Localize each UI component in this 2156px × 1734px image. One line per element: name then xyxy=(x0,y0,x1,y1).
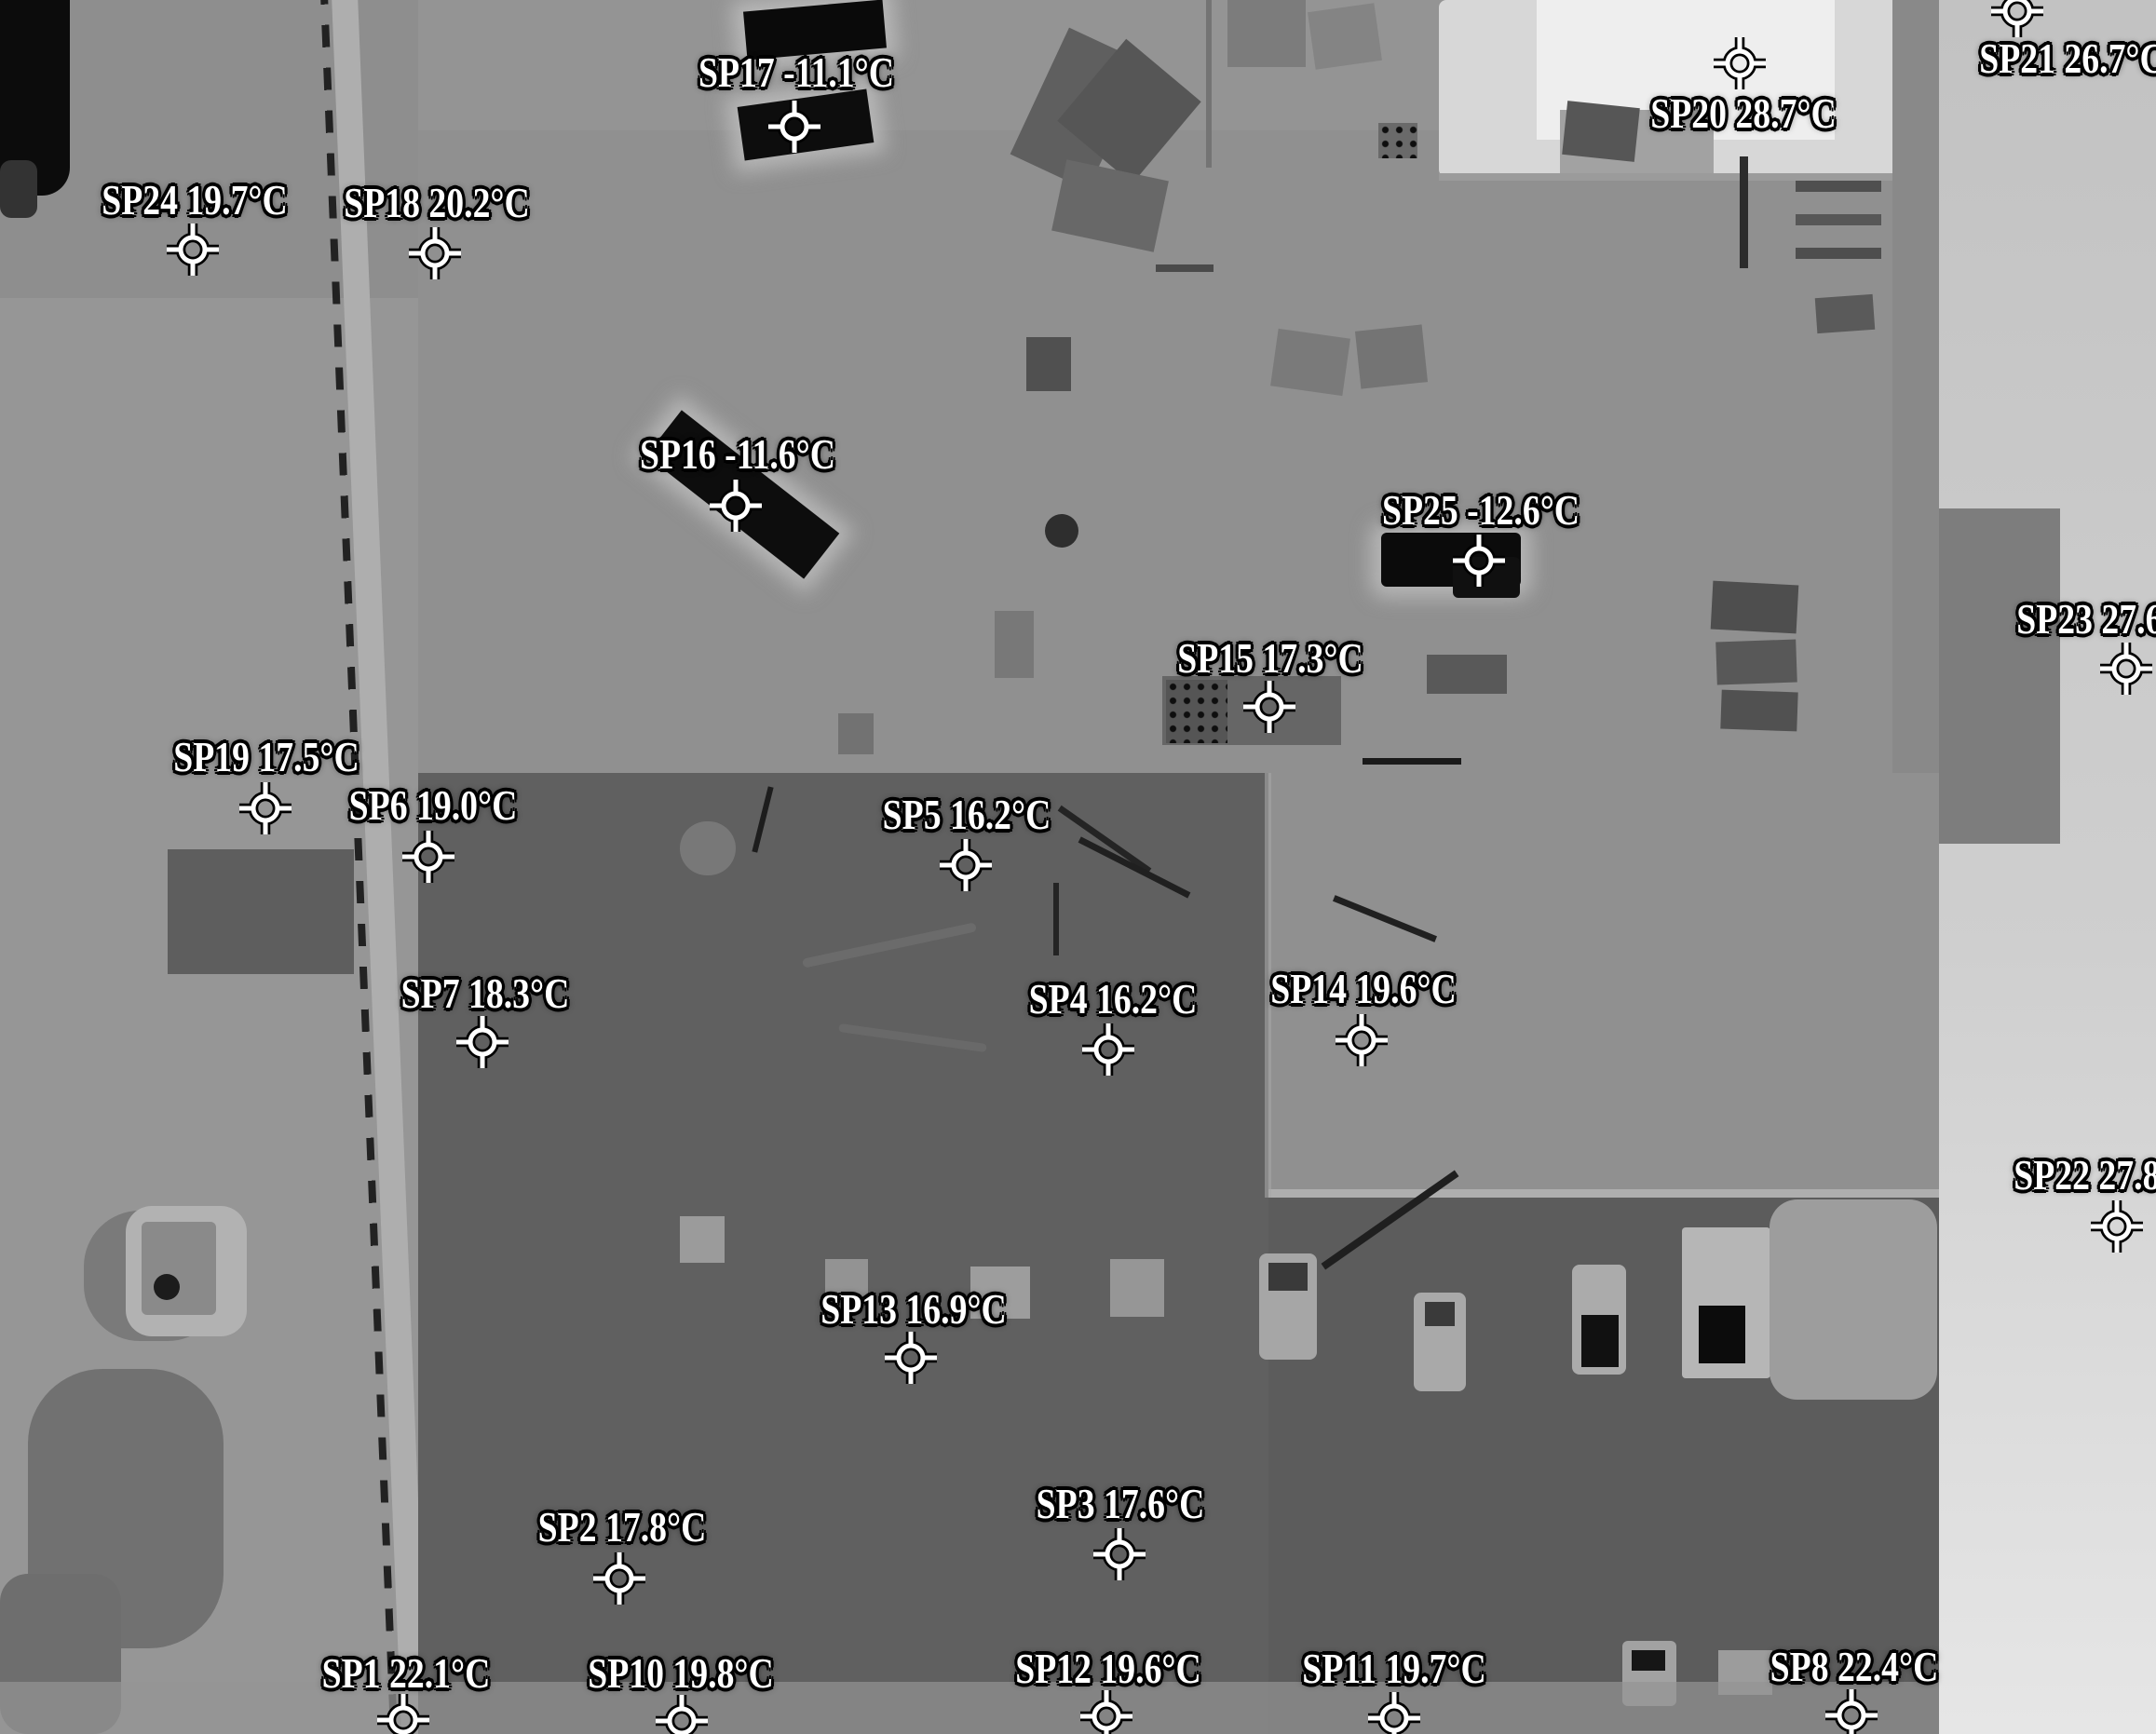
spot-label-sp21: SP21 26.7°C xyxy=(1979,37,2156,80)
crosshair-circle-icon xyxy=(1451,533,1507,589)
spot-label-sp12: SP12 19.6°C xyxy=(1015,1647,1201,1690)
spot-label-sp22: SP22 27.8°C xyxy=(2014,1154,2156,1197)
crosshair-circle-icon xyxy=(1334,1012,1390,1068)
spot-marker-sp7[interactable] xyxy=(454,1014,510,1070)
spot-label-sp23: SP23 27.6°C xyxy=(2016,598,2156,641)
crosshair-circle-icon xyxy=(407,225,463,281)
spot-marker-sp21[interactable] xyxy=(1989,0,2045,39)
spot-marker-sp18[interactable] xyxy=(407,225,463,281)
spot-label-sp1: SP1 22.1°C xyxy=(322,1652,491,1695)
crosshair-circle-icon xyxy=(2098,641,2154,697)
crosshair-circle-icon xyxy=(1080,1022,1136,1077)
spot-label-sp3: SP3 17.6°C xyxy=(1037,1483,1205,1525)
spot-marker-sp16[interactable] xyxy=(708,478,764,534)
spot-marker-sp24[interactable] xyxy=(165,222,221,278)
spot-label-sp16: SP16 -11.6°C xyxy=(640,433,835,476)
spot-label-sp25: SP25 -12.6°C xyxy=(1382,489,1580,532)
spot-label-sp18: SP18 20.2°C xyxy=(344,182,530,224)
spot-marker-sp6[interactable] xyxy=(400,829,456,885)
crosshair-circle-icon xyxy=(766,99,822,155)
spot-marker-sp10[interactable] xyxy=(654,1693,710,1734)
spot-label-sp19: SP19 17.5°C xyxy=(173,736,359,779)
spot-marker-sp11[interactable] xyxy=(1366,1690,1422,1734)
spot-measurements: SP1 22.1°CSP2 17.8°CSP3 17.6°CSP4 16.2°C… xyxy=(0,0,2156,1734)
spot-label-sp15: SP15 17.3°C xyxy=(1177,637,1363,680)
spot-label-sp7: SP7 18.3°C xyxy=(401,972,570,1015)
spot-marker-sp14[interactable] xyxy=(1334,1012,1390,1068)
thermal-image: SP1 22.1°CSP2 17.8°CSP3 17.6°CSP4 16.2°C… xyxy=(0,0,2156,1734)
crosshair-circle-icon xyxy=(1712,35,1768,91)
spot-label-sp4: SP4 16.2°C xyxy=(1029,978,1198,1021)
crosshair-circle-icon xyxy=(708,478,764,534)
spot-label-sp6: SP6 19.0°C xyxy=(349,784,518,827)
crosshair-circle-icon xyxy=(400,829,456,885)
spot-marker-sp4[interactable] xyxy=(1080,1022,1136,1077)
crosshair-circle-icon xyxy=(1989,0,2045,39)
spot-marker-sp13[interactable] xyxy=(883,1330,939,1386)
crosshair-circle-icon xyxy=(165,222,221,278)
spot-label-sp13: SP13 16.9°C xyxy=(820,1288,1007,1331)
spot-label-sp11: SP11 19.7°C xyxy=(1302,1647,1485,1690)
spot-marker-sp25[interactable] xyxy=(1451,533,1507,589)
spot-label-sp20: SP20 28.7°C xyxy=(1650,92,1837,135)
spot-marker-sp3[interactable] xyxy=(1092,1526,1147,1582)
spot-label-sp14: SP14 19.6°C xyxy=(1270,968,1457,1010)
spot-marker-sp20[interactable] xyxy=(1712,35,1768,91)
crosshair-circle-icon xyxy=(237,780,293,836)
crosshair-circle-icon xyxy=(2089,1199,2145,1254)
spot-label-sp8: SP8 22.4°C xyxy=(1770,1646,1939,1688)
spot-marker-sp12[interactable] xyxy=(1078,1688,1134,1734)
spot-label-sp24: SP24 19.7°C xyxy=(102,179,288,222)
crosshair-circle-icon xyxy=(375,1692,431,1734)
crosshair-circle-icon xyxy=(883,1330,939,1386)
crosshair-circle-icon xyxy=(938,837,994,893)
crosshair-circle-icon xyxy=(1092,1526,1147,1582)
crosshair-circle-icon xyxy=(454,1014,510,1070)
spot-marker-sp15[interactable] xyxy=(1241,679,1297,735)
crosshair-circle-icon xyxy=(654,1693,710,1734)
crosshair-circle-icon xyxy=(1241,679,1297,735)
spot-marker-sp19[interactable] xyxy=(237,780,293,836)
spot-marker-sp17[interactable] xyxy=(766,99,822,155)
spot-label-sp10: SP10 19.8°C xyxy=(588,1652,774,1695)
spot-label-sp17: SP17 -11.1°C xyxy=(698,51,894,94)
spot-marker-sp5[interactable] xyxy=(938,837,994,893)
spot-marker-sp22[interactable] xyxy=(2089,1199,2145,1254)
spot-marker-sp8[interactable] xyxy=(1824,1687,1879,1734)
spot-label-sp5: SP5 16.2°C xyxy=(883,793,1051,836)
crosshair-circle-icon xyxy=(591,1551,647,1606)
crosshair-circle-icon xyxy=(1366,1690,1422,1734)
crosshair-circle-icon xyxy=(1078,1688,1134,1734)
crosshair-circle-icon xyxy=(1824,1687,1879,1734)
spot-marker-sp2[interactable] xyxy=(591,1551,647,1606)
spot-label-sp2: SP2 17.8°C xyxy=(538,1506,707,1549)
spot-marker-sp1[interactable] xyxy=(375,1692,431,1734)
spot-marker-sp23[interactable] xyxy=(2098,641,2154,697)
